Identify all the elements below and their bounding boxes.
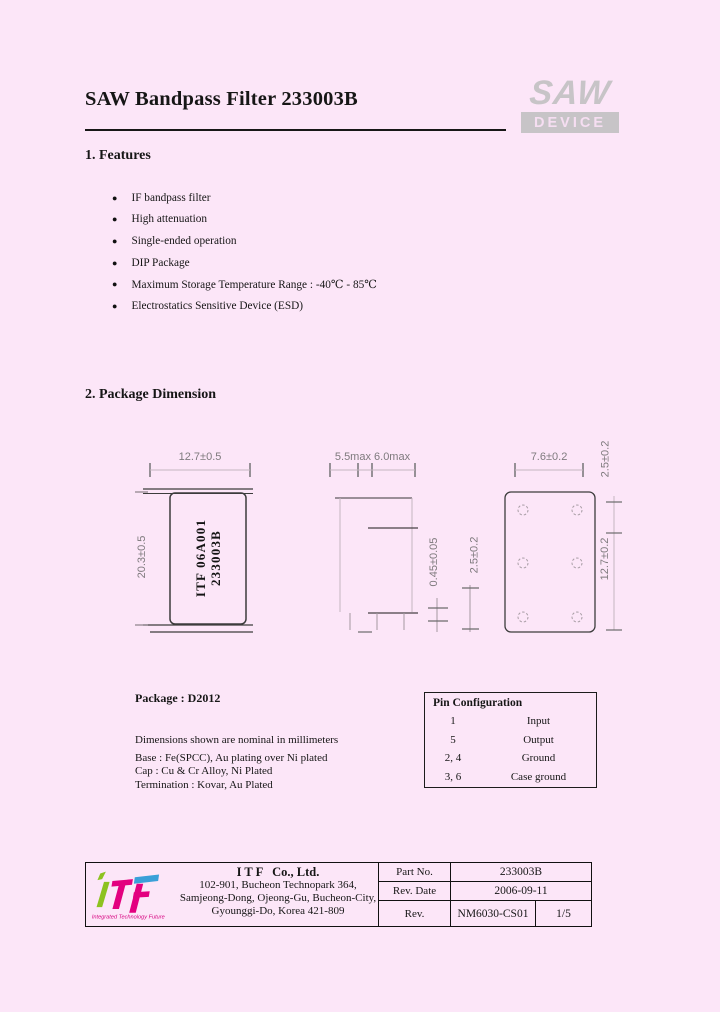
title-divider xyxy=(85,129,506,131)
itf-logo-tagline: Integrated Technology Future xyxy=(92,914,165,920)
company-address: I T F Co., Ltd. 102-901, Bucheon Technop… xyxy=(178,863,379,926)
dim-label-front-width: 12.7±0.5 xyxy=(155,450,245,464)
part-no-value: 233003B xyxy=(451,863,591,882)
dim-label-lead-length: 2.5±0.2 xyxy=(468,528,482,583)
side-view xyxy=(330,463,479,632)
feature-item: ●Single-ended operation xyxy=(112,230,377,252)
dim-label-front-height: 20.3±0.5 xyxy=(135,522,149,592)
dim-label-lead-thickness: 0.45±0.05 xyxy=(427,526,441,598)
pin-configuration-heading: Pin Configuration xyxy=(425,693,596,712)
note-line: Termination : Kovar, Au Plated xyxy=(135,779,338,792)
address-line: Gyounggi-Do, Korea 421-809 xyxy=(178,905,378,918)
package-dimension-heading: 2. Package Dimension xyxy=(85,387,216,403)
rev-value: NM6030-CS01 xyxy=(451,901,536,926)
itf-logo: Integrated Technology Future xyxy=(86,863,178,926)
saw-logo-text: SAW xyxy=(519,76,621,110)
address-line: 102-901, Bucheon Technopark 364, xyxy=(178,879,378,892)
package-code-label: Package : D2012 xyxy=(135,691,220,706)
page-title: SAW Bandpass Filter 233003B xyxy=(85,88,358,111)
note-line: Dimensions shown are nominal in millimet… xyxy=(135,734,338,747)
revision-table: Part No. 233003B Rev. Date 2006-09-11 Re… xyxy=(379,863,591,926)
dimension-notes: Dimensions shown are nominal in millimet… xyxy=(135,734,338,792)
company-name: I T F Co., Ltd. xyxy=(178,865,378,879)
note-line: Base : Fe(SPCC), Au plating over Ni plat… xyxy=(135,752,338,765)
dim-label-bottom-pitch: 2.5±0.2 xyxy=(599,432,613,487)
feature-item: ●Electrostatics Sensitive Device (ESD) xyxy=(112,295,377,317)
pin-row: 5 Output xyxy=(425,731,596,750)
saw-device-logo: SAW DEVICE xyxy=(521,76,619,133)
bullet-icon: ● xyxy=(112,301,117,311)
bullet-icon: ● xyxy=(112,236,117,246)
pin-row: 1 Input xyxy=(425,712,596,731)
dim-label-bottom-width: 7.6±0.2 xyxy=(509,450,589,464)
dim-label-bottom-length: 12.7±0.2 xyxy=(598,528,612,590)
footer-title-block: Integrated Technology Future I T F Co., … xyxy=(85,862,592,927)
address-line: Samjeong-Dong, Ojeong-Gu, Bucheon-City, xyxy=(178,892,378,905)
rev-date-label: Rev. Date xyxy=(379,882,451,901)
bullet-icon: ● xyxy=(112,214,117,224)
feature-item: ●IF bandpass filter xyxy=(112,187,377,209)
part-no-label: Part No. xyxy=(379,863,451,882)
device-logo-bar: DEVICE xyxy=(521,112,619,133)
features-heading: 1. Features xyxy=(85,148,151,164)
page-number: 1/5 xyxy=(536,901,591,926)
rev-date-value: 2006-09-11 xyxy=(451,882,591,901)
device-logo-text: DEVICE xyxy=(534,115,606,131)
datasheet-page: SAW Bandpass Filter 233003B SAW DEVICE 1… xyxy=(0,0,720,1012)
dim-label-side-width: 5.5max 6.0max xyxy=(320,450,425,464)
package-marking: ITF 06A001 233003B xyxy=(193,502,223,614)
note-line: Cap : Cu & Cr Alloy, Ni Plated xyxy=(135,765,338,778)
bullet-icon: ● xyxy=(112,193,117,203)
feature-item: ●Maximum Storage Temperature Range : -40… xyxy=(112,273,377,295)
rev-label: Rev. xyxy=(379,901,451,926)
pin-configuration-table: Pin Configuration 1 Input 5 Output 2, 4 … xyxy=(424,692,597,788)
bullet-icon: ● xyxy=(112,279,117,289)
feature-item: ●High attenuation xyxy=(112,209,377,231)
feature-item: ●DIP Package xyxy=(112,252,377,274)
features-list: ●IF bandpass filter ●High attenuation ●S… xyxy=(112,187,377,317)
bullet-icon: ● xyxy=(112,258,117,268)
pin-row: 2, 4 Ground xyxy=(425,749,596,768)
pin-row: 3, 6 Case ground xyxy=(425,768,596,787)
